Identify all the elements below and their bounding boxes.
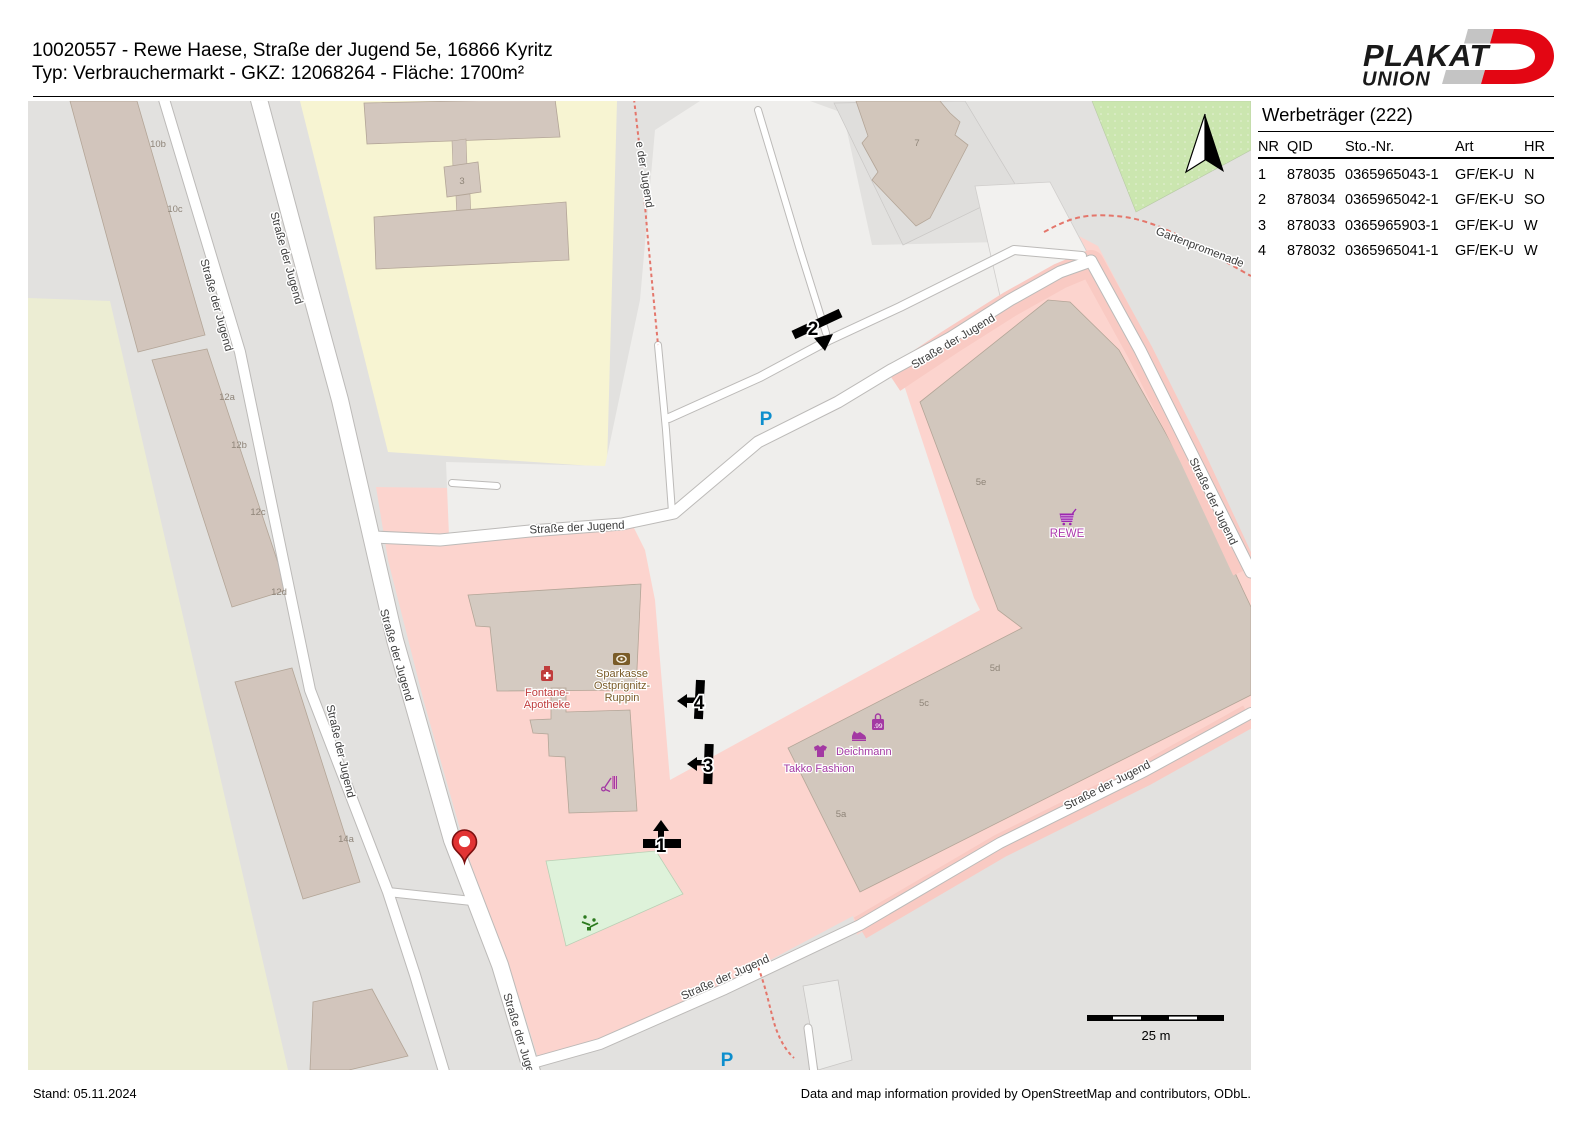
svg-text:Sparkasse: Sparkasse: [596, 668, 648, 680]
svg-text:Deichmann: Deichmann: [836, 746, 892, 758]
svg-text:12a: 12a: [219, 392, 236, 403]
svg-text:12d: 12d: [271, 587, 287, 598]
svg-text:12c: 12c: [250, 507, 266, 518]
svg-text:UNION: UNION: [1362, 69, 1430, 91]
svg-text:5d: 5d: [990, 663, 1001, 674]
svg-text:12b: 12b: [231, 440, 247, 451]
svg-text:3: 3: [703, 756, 714, 777]
svg-text:P: P: [760, 409, 773, 430]
svg-text:REWE: REWE: [1050, 528, 1085, 540]
svg-text:5e: 5e: [976, 477, 987, 488]
svg-text:2: 2: [808, 319, 819, 340]
svg-text:Takko Fashion: Takko Fashion: [784, 763, 855, 775]
svg-text:25 m: 25 m: [1142, 1028, 1171, 1043]
svg-text:10c: 10c: [167, 204, 183, 215]
svg-text:10b: 10b: [150, 139, 166, 150]
svg-text:Apotheke: Apotheke: [524, 699, 570, 711]
svg-text:7: 7: [914, 138, 919, 149]
svg-text:Ostprignitz-: Ostprignitz-: [594, 680, 651, 692]
svg-text:.99: .99: [873, 723, 882, 730]
svg-text:Ruppin: Ruppin: [605, 692, 640, 704]
svg-text:P: P: [721, 1050, 734, 1070]
svg-text:4: 4: [694, 693, 705, 714]
svg-text:5c: 5c: [919, 698, 929, 709]
svg-text:1: 1: [656, 836, 667, 857]
svg-text:3: 3: [459, 176, 464, 187]
svg-text:Fontane-: Fontane-: [525, 687, 569, 699]
svg-text:5a: 5a: [836, 809, 847, 820]
svg-text:14a: 14a: [338, 834, 355, 845]
